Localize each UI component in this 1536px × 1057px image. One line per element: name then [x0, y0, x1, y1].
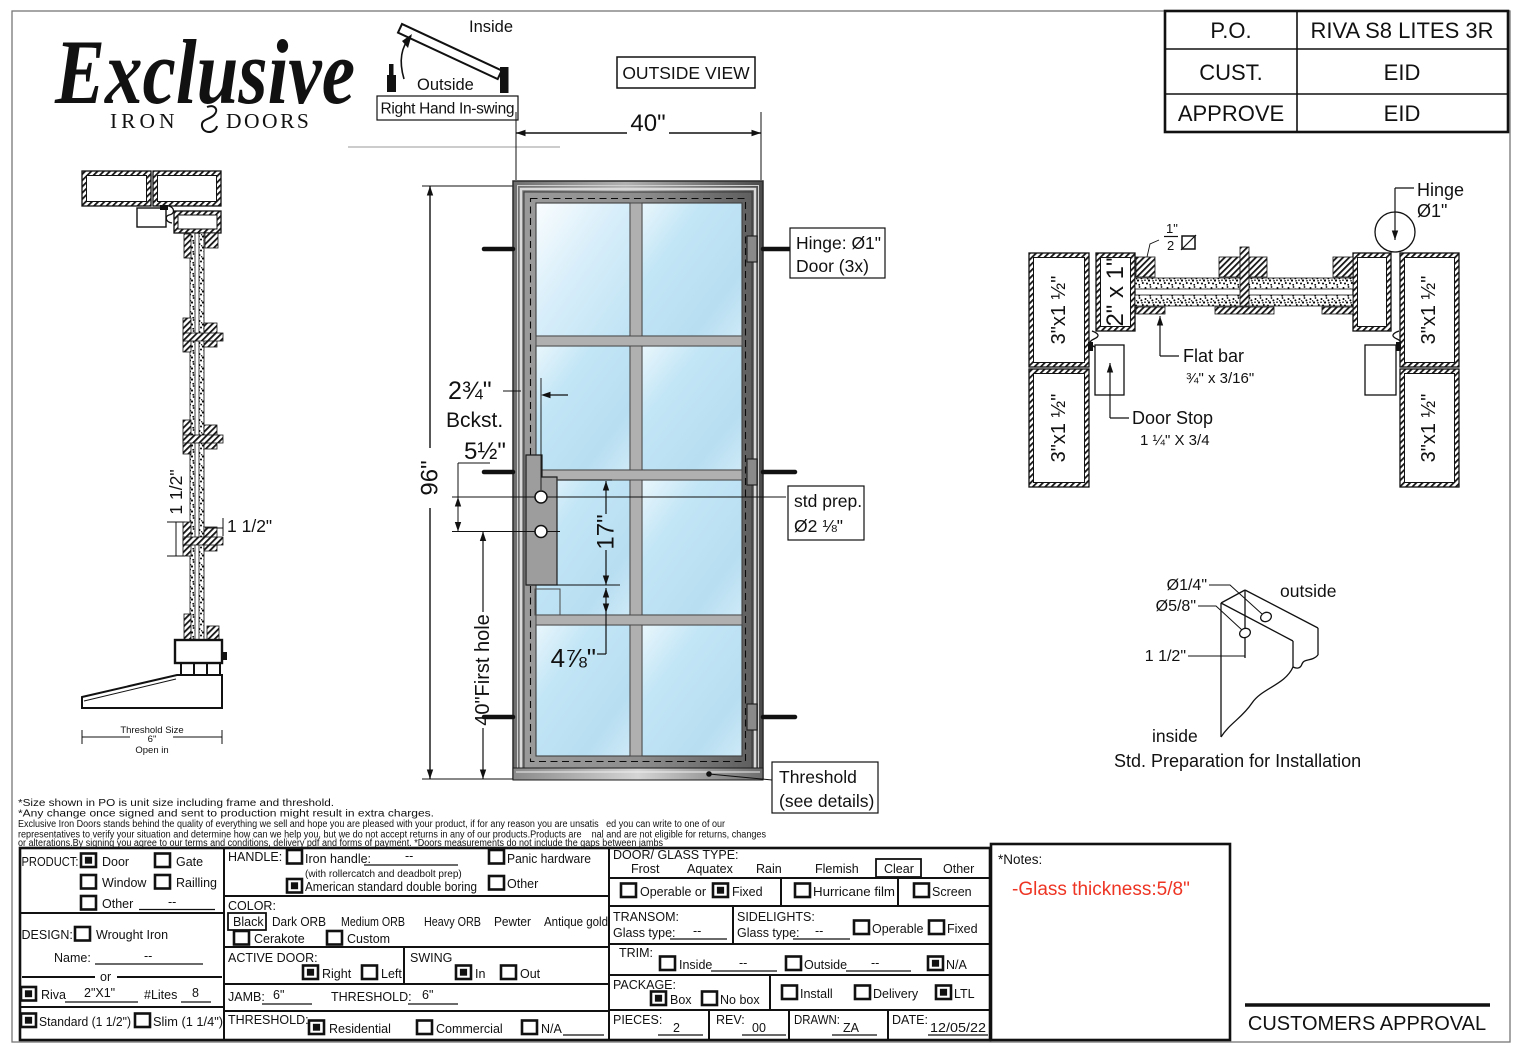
svg-text:Box: Box: [670, 993, 692, 1007]
svg-text:5½": 5½": [464, 438, 506, 465]
svg-text:--: --: [405, 849, 413, 863]
svg-text:LTL: LTL: [954, 987, 975, 1001]
svg-text:Other: Other: [507, 877, 538, 891]
svg-text:Heavy ORB: Heavy ORB: [424, 915, 481, 929]
svg-text:1 1/2": 1 1/2": [227, 516, 272, 536]
svg-text:(with rollercatch and deadbolt: (with rollercatch and deadbolt prep): [305, 869, 462, 880]
svg-text:Panic hardware: Panic hardware: [507, 852, 591, 866]
svg-text:Ø1/4": Ø1/4": [1167, 577, 1207, 594]
svg-text:Other: Other: [102, 897, 133, 911]
svg-text:Pewter: Pewter: [494, 915, 531, 929]
svg-text:Bckst.: Bckst.: [446, 409, 503, 432]
svg-text:Railling: Railling: [176, 876, 217, 890]
svg-text:Out: Out: [520, 967, 541, 981]
svg-text:Delivery: Delivery: [873, 987, 919, 1001]
svg-text:Left: Left: [381, 967, 402, 981]
svg-text:inside: inside: [1152, 726, 1198, 746]
svg-text:8: 8: [192, 986, 199, 1000]
svg-text:2: 2: [673, 1021, 680, 1035]
svg-text:2"X1": 2"X1": [84, 986, 115, 1000]
svg-text:--: --: [815, 924, 823, 938]
svg-text:17": 17": [593, 514, 620, 549]
svg-text:Outside: Outside: [804, 958, 847, 972]
svg-text:Inside: Inside: [679, 958, 712, 972]
svg-text:SIDELIGHTS:: SIDELIGHTS:: [737, 910, 815, 924]
svg-text:2" x 1": 2" x 1": [1102, 257, 1129, 326]
svg-text:PACKAGE:: PACKAGE:: [613, 978, 676, 992]
svg-text:Gate: Gate: [176, 855, 203, 869]
svg-text:Hinge: Hinge: [1417, 180, 1464, 200]
svg-text:TRIM:: TRIM:: [619, 946, 653, 960]
svg-text:Standard (1 1/2"): Standard (1 1/2"): [39, 1015, 131, 1029]
svg-text:Threshold: Threshold: [779, 767, 857, 787]
svg-text:Ø1": Ø1": [1417, 201, 1447, 221]
svg-text:Door: Door: [102, 855, 129, 869]
svg-text:Hinge: Ø1": Hinge: Ø1": [796, 233, 881, 253]
svg-text:¾" x 3/16": ¾" x 3/16": [1186, 370, 1254, 387]
svg-text:Exclusive Iron Doors stands be: Exclusive Iron Doors stands behind the q…: [18, 819, 726, 830]
svg-text:6": 6": [422, 988, 433, 1002]
svg-text:Clear: Clear: [884, 862, 914, 876]
svg-text:2: 2: [1167, 238, 1174, 253]
svg-text:#Lites: #Lites: [144, 988, 177, 1002]
svg-text:Iron handle:: Iron handle:: [305, 852, 371, 866]
svg-text:--: --: [168, 895, 176, 909]
svg-text:N/A: N/A: [946, 958, 968, 972]
svg-text:Name:: Name:: [54, 951, 91, 965]
svg-text:6": 6": [273, 988, 284, 1002]
svg-text:OUTSIDE VIEW: OUTSIDE VIEW: [622, 63, 750, 83]
svg-text:Ø5/8": Ø5/8": [1156, 598, 1196, 615]
svg-text:Inside: Inside: [469, 18, 513, 36]
svg-text:DOOR/ GLASS TYPE:: DOOR/ GLASS TYPE:: [613, 848, 739, 862]
svg-text:DRAWN:: DRAWN:: [794, 1013, 840, 1027]
svg-text:Screen: Screen: [932, 885, 972, 899]
svg-text:--: --: [693, 924, 701, 938]
svg-text:APPROVE: APPROVE: [1178, 101, 1284, 126]
svg-text:-Glass thickness:5/8": -Glass thickness:5/8": [1012, 879, 1190, 900]
svg-text:1 1/2": 1 1/2": [166, 469, 186, 514]
svg-text:Cerakote: Cerakote: [254, 932, 305, 946]
svg-text:40": 40": [630, 110, 665, 137]
svg-text:3"x1 ½": 3"x1 ½": [1048, 276, 1070, 345]
svg-text:4⅞": 4⅞": [551, 643, 596, 673]
svg-text:Rain: Rain: [756, 862, 782, 876]
svg-text:Flat bar: Flat bar: [1183, 346, 1244, 366]
svg-text:6": 6": [148, 734, 157, 745]
svg-text:00: 00: [752, 1021, 766, 1035]
svg-text:Other: Other: [943, 862, 974, 876]
svg-text:Glass type:: Glass type:: [737, 926, 800, 940]
svg-text:ACTIVE DOOR:: ACTIVE DOOR:: [228, 951, 318, 965]
svg-text:PIECES:: PIECES:: [613, 1013, 662, 1027]
svg-text:SWING: SWING: [410, 951, 452, 965]
svg-text:RIVA S8 LITES 3R: RIVA S8 LITES 3R: [1310, 18, 1493, 43]
svg-text:Riva: Riva: [41, 988, 66, 1002]
svg-text:Outside: Outside: [417, 76, 474, 94]
svg-text:Open in: Open in: [135, 745, 168, 756]
svg-text:ZA: ZA: [843, 1021, 860, 1035]
svg-text:1 1/2": 1 1/2": [1145, 648, 1186, 665]
svg-text:12/05/22: 12/05/22: [930, 1021, 986, 1035]
svg-text:EID: EID: [1384, 60, 1421, 85]
svg-text:std prep.: std prep.: [794, 491, 862, 511]
svg-text:Residential: Residential: [329, 1022, 391, 1036]
svg-text:3"x1 ½": 3"x1 ½": [1048, 394, 1070, 463]
svg-text:Operable: Operable: [872, 922, 923, 936]
svg-text:DATE:: DATE:: [892, 1013, 928, 1027]
svg-text:TRANSOM:: TRANSOM:: [613, 910, 679, 924]
svg-text:--: --: [739, 956, 747, 970]
svg-text:Door Stop: Door Stop: [1132, 408, 1213, 428]
svg-text:Wrought Iron: Wrought Iron: [96, 928, 168, 942]
svg-text:P.O.: P.O.: [1210, 18, 1251, 43]
svg-text:1": 1": [1166, 221, 1178, 236]
svg-text:American standard double borin: American standard double boring: [305, 880, 477, 894]
svg-text:Frost: Frost: [631, 862, 660, 876]
svg-text:1 ¼" X 3/4: 1 ¼" X 3/4: [1140, 432, 1210, 449]
svg-text:IRON: IRON: [110, 109, 179, 133]
svg-text:Right Hand In-swing: Right Hand In-swing: [381, 101, 515, 118]
svg-text:DESIGN:: DESIGN:: [22, 928, 73, 942]
svg-text:Right: Right: [322, 967, 352, 981]
svg-text:*Size shown in PO is unit size: *Size shown in PO is unit size including…: [18, 798, 334, 809]
svg-text:*Any change once signed and se: *Any change once signed and sent to prod…: [18, 809, 434, 820]
svg-text:3"x1 ½": 3"x1 ½": [1418, 276, 1440, 345]
svg-text:Ø2 ⅛": Ø2 ⅛": [794, 516, 843, 536]
svg-text:*Notes:: *Notes:: [998, 852, 1042, 867]
svg-text:Hurricane film: Hurricane film: [813, 885, 895, 899]
svg-text:Glass type:: Glass type:: [613, 926, 676, 940]
svg-text:Antique gold: Antique gold: [544, 915, 608, 929]
svg-text:PRODUCT:: PRODUCT:: [22, 855, 79, 869]
svg-text:Black: Black: [233, 915, 264, 929]
svg-text:No box: No box: [720, 993, 760, 1007]
svg-text:Medium ORB: Medium ORB: [341, 915, 405, 929]
svg-text:CUSTOMERS APPROVAL: CUSTOMERS APPROVAL: [1248, 1013, 1486, 1035]
svg-text:Operable or: Operable or: [640, 885, 706, 899]
svg-text:JAMB:: JAMB:: [228, 990, 265, 1004]
svg-text:CUST.: CUST.: [1199, 60, 1263, 85]
svg-text:outside: outside: [1280, 581, 1336, 601]
svg-text:Window: Window: [102, 876, 147, 890]
svg-text:Slim (1 1/4"): Slim (1 1/4"): [153, 1015, 223, 1029]
svg-text:THRESHOLD:: THRESHOLD:: [331, 990, 412, 1004]
svg-text:EID: EID: [1384, 101, 1421, 126]
svg-text:Install: Install: [800, 987, 833, 1001]
svg-text:Exclusive: Exclusive: [54, 21, 355, 123]
svg-text:--: --: [144, 949, 152, 963]
svg-text:REV:: REV:: [716, 1013, 745, 1027]
svg-text:N/A: N/A: [541, 1022, 563, 1036]
svg-text:HANDLE:: HANDLE:: [228, 850, 282, 864]
svg-text:Fixed: Fixed: [947, 922, 978, 936]
svg-text:or: or: [100, 970, 111, 984]
svg-text:--: --: [871, 956, 879, 970]
svg-text:COLOR:: COLOR:: [228, 899, 276, 913]
svg-text:40"First hole: 40"First hole: [472, 614, 494, 726]
svg-text:THRESHOLD:: THRESHOLD:: [228, 1013, 309, 1027]
svg-text:Aquatex: Aquatex: [687, 862, 734, 876]
svg-text:DOORS: DOORS: [226, 109, 311, 133]
svg-text:Flemish: Flemish: [815, 862, 859, 876]
svg-text:In: In: [475, 967, 485, 981]
svg-text:Custom: Custom: [347, 932, 390, 946]
svg-text:Dark ORB: Dark ORB: [272, 915, 326, 929]
svg-text:2¾": 2¾": [448, 377, 492, 405]
svg-text:Door (3x): Door (3x): [796, 256, 869, 276]
svg-text:Std. Preparation for Installat: Std. Preparation for Installation: [1114, 751, 1361, 771]
svg-text:3"x1 ½": 3"x1 ½": [1418, 394, 1440, 463]
svg-text:(see details): (see details): [779, 791, 874, 811]
svg-text:96": 96": [417, 460, 444, 495]
svg-text:Commercial: Commercial: [436, 1022, 503, 1036]
svg-text:Fixed: Fixed: [732, 885, 763, 899]
